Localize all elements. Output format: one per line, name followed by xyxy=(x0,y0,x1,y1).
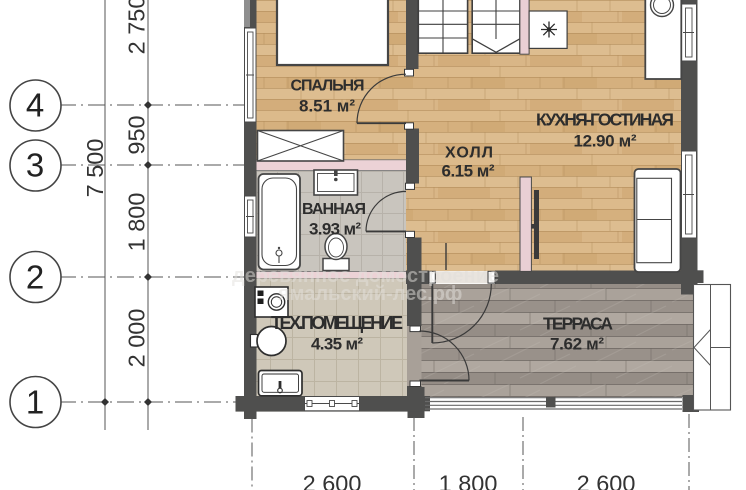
svg-text:2 600: 2 600 xyxy=(577,471,636,490)
svg-text:4.35 м²: 4.35 м² xyxy=(311,335,363,354)
svg-text:ХОЛЛ: ХОЛЛ xyxy=(445,145,493,162)
svg-text:ТЕХ.ПОМЕЩЕНИЕ: ТЕХ.ПОМЕЩЕНИЕ xyxy=(271,313,403,333)
svg-text:12.90 м²: 12.90 м² xyxy=(574,132,637,151)
svg-text:6.15 м²: 6.15 м² xyxy=(442,162,495,181)
svg-text:2 000: 2 000 xyxy=(124,309,150,368)
svg-text:ТЕРРАСА: ТЕРРАСА xyxy=(543,314,613,334)
svg-text:ямальский-лес.рф: ямальский-лес.рф xyxy=(277,283,462,305)
svg-text:2 750: 2 750 xyxy=(124,0,150,54)
svg-text:2 600: 2 600 xyxy=(303,471,362,490)
svg-text:ВАННАЯ: ВАННАЯ xyxy=(302,201,366,218)
svg-text:8.51 м²: 8.51 м² xyxy=(299,97,355,116)
svg-text:КУХНЯ-ГОСТИНАЯ: КУХНЯ-ГОСТИНАЯ xyxy=(536,110,674,130)
svg-text:4: 4 xyxy=(26,87,44,124)
svg-text:7.62 м²: 7.62 м² xyxy=(550,335,604,354)
svg-text:950: 950 xyxy=(124,115,150,154)
svg-text:3.93 м²: 3.93 м² xyxy=(309,220,361,239)
svg-text:1 800: 1 800 xyxy=(124,193,150,252)
svg-text:1 800: 1 800 xyxy=(439,471,498,490)
svg-text:7 500: 7 500 xyxy=(82,139,108,198)
svg-text:3: 3 xyxy=(26,147,44,184)
svg-text:СПАЛЬНЯ: СПАЛЬНЯ xyxy=(291,78,365,95)
svg-text:2: 2 xyxy=(26,259,44,296)
svg-text:1: 1 xyxy=(26,384,44,421)
